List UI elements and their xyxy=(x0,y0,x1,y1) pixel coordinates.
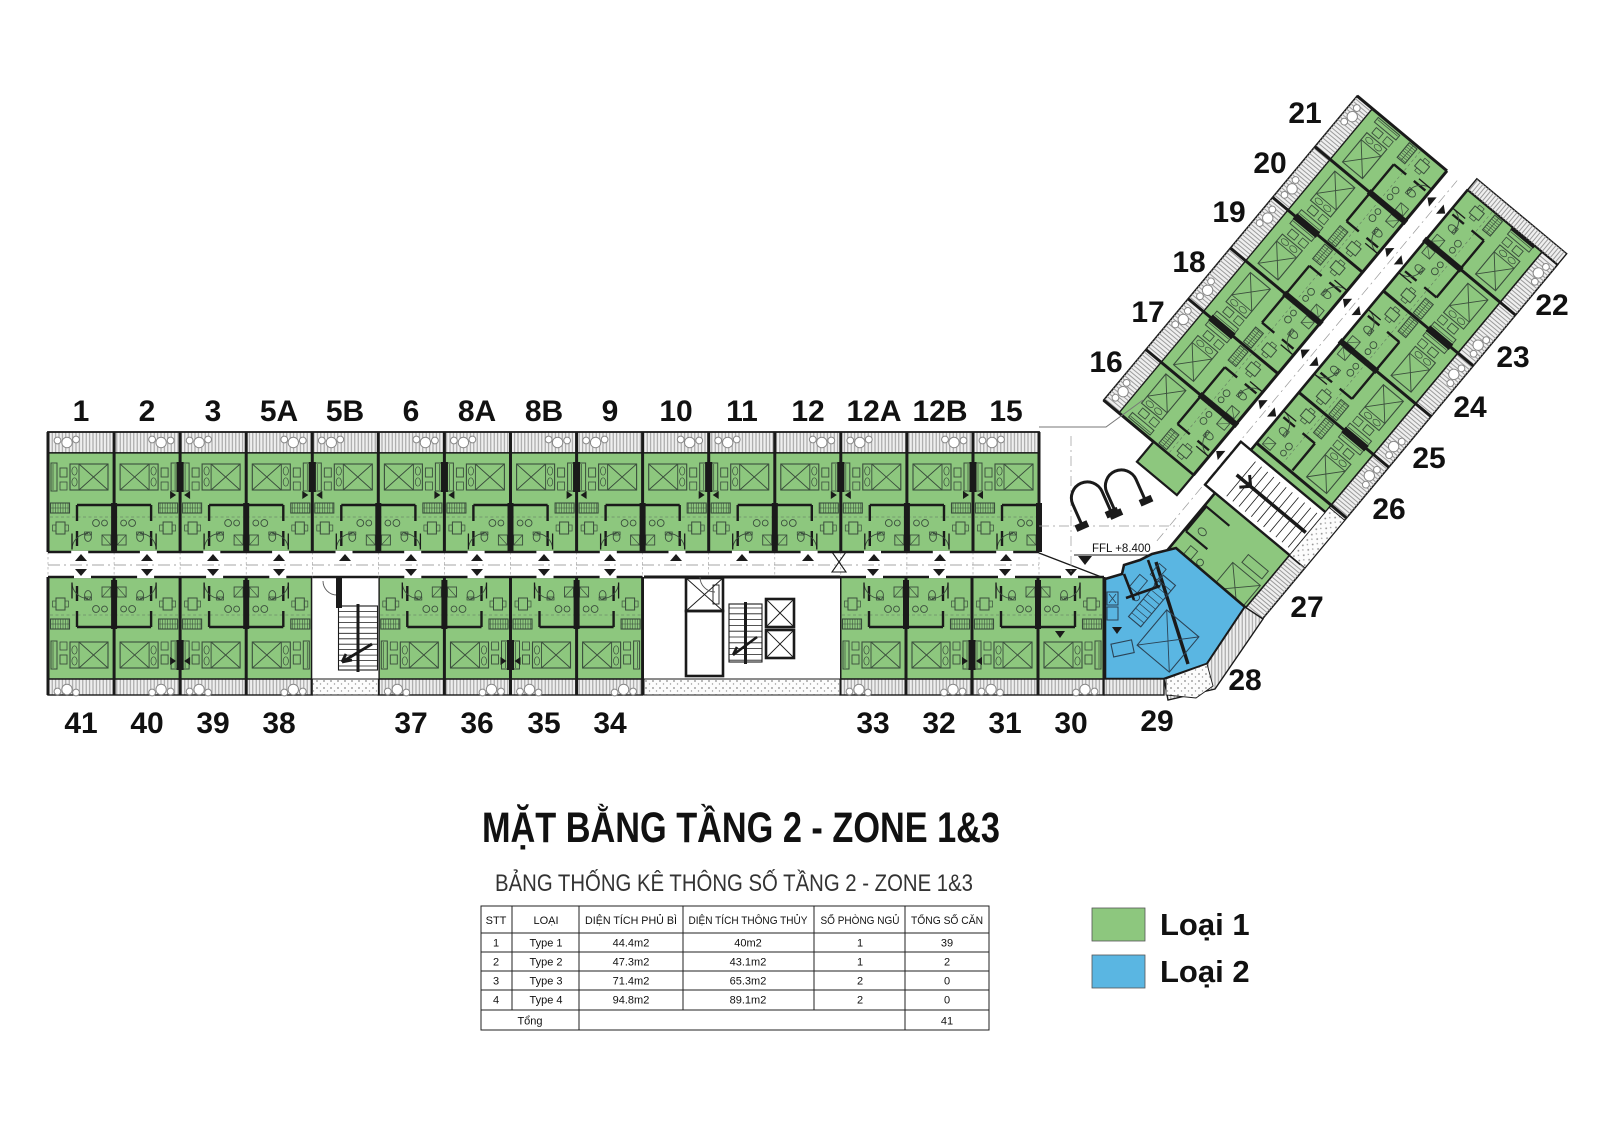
svg-text:3: 3 xyxy=(493,976,499,988)
svg-text:31: 31 xyxy=(988,707,1021,740)
svg-text:25: 25 xyxy=(1412,442,1445,475)
svg-text:10: 10 xyxy=(659,395,692,428)
svg-text:18: 18 xyxy=(1172,246,1205,279)
svg-text:BẢNG THỐNG KÊ THÔNG SỐ TẦNG 2: BẢNG THỐNG KÊ THÔNG SỐ TẦNG 2 - ZONE 1&3 xyxy=(495,868,973,897)
svg-text:5B: 5B xyxy=(326,395,364,428)
svg-text:65.3m2: 65.3m2 xyxy=(730,976,767,988)
svg-text:23: 23 xyxy=(1496,341,1529,374)
svg-text:41: 41 xyxy=(64,707,97,740)
svg-text:28: 28 xyxy=(1228,664,1261,697)
svg-text:33: 33 xyxy=(856,707,889,740)
svg-text:SỐ PHÒNG NGỦ: SỐ PHÒNG NGỦ xyxy=(821,913,900,927)
svg-text:LOẠI: LOẠI xyxy=(533,915,558,927)
svg-text:36: 36 xyxy=(460,707,493,740)
svg-text:11: 11 xyxy=(726,395,758,428)
svg-text:44.4m2: 44.4m2 xyxy=(613,938,650,950)
svg-text:16: 16 xyxy=(1089,346,1122,379)
svg-text:20: 20 xyxy=(1253,147,1286,180)
svg-text:12B: 12B xyxy=(912,395,967,428)
svg-text:2: 2 xyxy=(493,957,499,969)
svg-text:1: 1 xyxy=(493,938,499,950)
svg-text:MẶT BẰNG TẦNG 2 - ZONE 1&3: MẶT BẰNG TẦNG 2 - ZONE 1&3 xyxy=(482,804,1000,852)
svg-text:8B: 8B xyxy=(525,395,563,428)
svg-text:26: 26 xyxy=(1372,493,1405,526)
svg-text:5A: 5A xyxy=(260,395,298,428)
svg-text:40: 40 xyxy=(130,707,163,740)
svg-text:6: 6 xyxy=(403,395,420,428)
svg-text:94.8m2: 94.8m2 xyxy=(613,995,650,1007)
svg-text:27: 27 xyxy=(1290,591,1323,624)
svg-text:9: 9 xyxy=(602,395,619,428)
svg-text:12: 12 xyxy=(791,395,824,428)
svg-text:0: 0 xyxy=(944,976,950,988)
svg-text:0: 0 xyxy=(944,995,950,1007)
svg-text:38: 38 xyxy=(262,707,295,740)
svg-text:29: 29 xyxy=(1140,705,1173,738)
svg-text:32: 32 xyxy=(922,707,955,740)
svg-text:1: 1 xyxy=(857,938,863,950)
svg-text:17: 17 xyxy=(1131,296,1164,329)
svg-text:2: 2 xyxy=(139,395,156,428)
svg-text:2: 2 xyxy=(857,995,863,1007)
svg-text:39: 39 xyxy=(196,707,229,740)
svg-text:43.1m2: 43.1m2 xyxy=(730,957,767,969)
svg-text:37: 37 xyxy=(394,707,427,740)
svg-text:TỔNG SỐ CĂN: TỔNG SỐ CĂN xyxy=(911,913,983,927)
svg-text:39: 39 xyxy=(941,938,953,950)
svg-text:47.3m2: 47.3m2 xyxy=(613,957,650,969)
svg-text:Type 3: Type 3 xyxy=(529,976,562,988)
svg-text:Type 2: Type 2 xyxy=(529,957,562,969)
svg-text:DIỆN TÍCH PHỦ BÌ: DIỆN TÍCH PHỦ BÌ xyxy=(585,914,677,927)
svg-text:40m2: 40m2 xyxy=(734,938,762,950)
svg-text:24: 24 xyxy=(1453,391,1487,424)
svg-text:34: 34 xyxy=(593,707,627,740)
svg-text:DIỆN TÍCH THÔNG THỦY: DIỆN TÍCH THÔNG THỦY xyxy=(689,914,809,927)
svg-text:30: 30 xyxy=(1054,707,1087,740)
svg-text:FFL +8.400: FFL +8.400 xyxy=(1092,543,1151,555)
svg-text:2: 2 xyxy=(944,957,950,969)
svg-text:3: 3 xyxy=(205,395,222,428)
svg-text:Tổng: Tổng xyxy=(517,1016,542,1028)
svg-text:21: 21 xyxy=(1288,97,1321,130)
svg-text:1: 1 xyxy=(73,395,90,428)
svg-text:22: 22 xyxy=(1535,289,1568,322)
svg-text:Type 4: Type 4 xyxy=(529,995,562,1007)
svg-text:STT: STT xyxy=(486,915,507,927)
svg-text:41: 41 xyxy=(941,1016,953,1028)
svg-text:Loại 1: Loại 1 xyxy=(1160,907,1250,942)
svg-text:Loại 2: Loại 2 xyxy=(1160,954,1250,989)
svg-text:12A: 12A xyxy=(846,395,901,428)
svg-text:19: 19 xyxy=(1212,196,1245,229)
svg-text:1: 1 xyxy=(857,957,863,969)
svg-text:71.4m2: 71.4m2 xyxy=(613,976,650,988)
svg-text:8A: 8A xyxy=(458,395,496,428)
svg-text:89.1m2: 89.1m2 xyxy=(730,995,767,1007)
svg-text:Type 1: Type 1 xyxy=(529,938,562,950)
svg-text:2: 2 xyxy=(857,976,863,988)
svg-text:4: 4 xyxy=(493,995,499,1007)
svg-text:15: 15 xyxy=(989,395,1022,428)
svg-text:35: 35 xyxy=(527,707,560,740)
